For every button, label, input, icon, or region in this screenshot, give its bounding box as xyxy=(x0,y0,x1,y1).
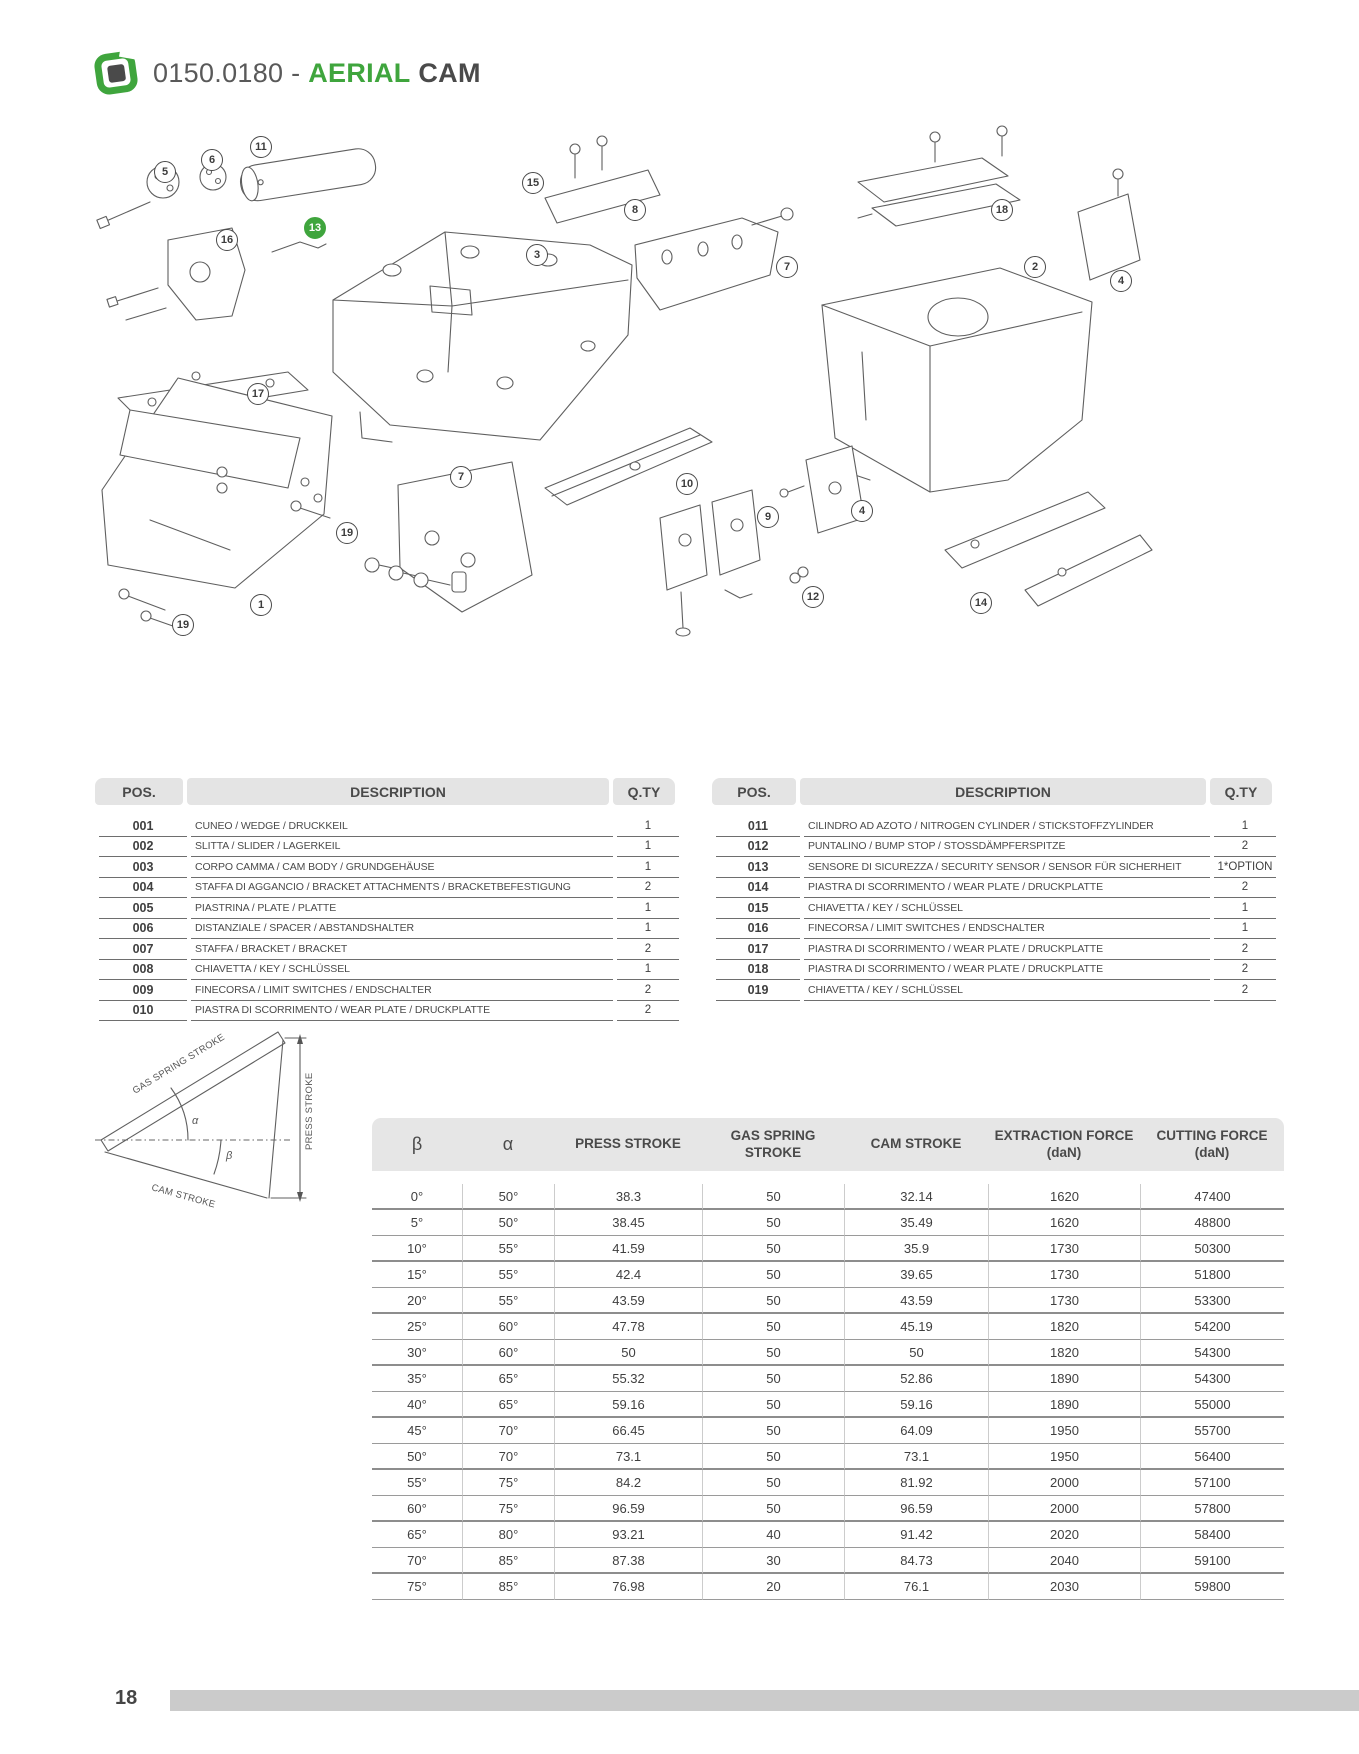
wear-plate-bottom-right xyxy=(945,492,1152,606)
extraction-force-value: 1730 xyxy=(988,1262,1140,1288)
part-qty: 2 xyxy=(617,939,679,960)
diagram-callout-14: 14 xyxy=(970,592,992,614)
force-table-row: 45° 70° 66.45 50 64.09 1950 55700 xyxy=(372,1418,1284,1444)
part-qty: 1 xyxy=(617,960,679,981)
bracket-attachment-right xyxy=(1078,169,1140,280)
gas-spring-stroke-value: 50 xyxy=(702,1210,844,1236)
cutting-force-value: 55700 xyxy=(1140,1418,1284,1444)
alpha-value: 50° xyxy=(462,1184,554,1210)
force-table-header-row: β α PRESS STROKE GAS SPRING STROKE CAM S… xyxy=(372,1118,1284,1184)
cutting-force-value: 59100 xyxy=(1140,1548,1284,1574)
extraction-force-value: 1890 xyxy=(988,1366,1140,1392)
part-pos: 017 xyxy=(716,939,800,960)
gas-spring-stroke-value: 50 xyxy=(702,1236,844,1262)
parts-row: 009 FINECORSA / LIMIT SWITCHES / ENDSCHA… xyxy=(99,980,679,1001)
beta-value: 15° xyxy=(372,1262,462,1288)
cam-stroke-label: CAM STROKE xyxy=(150,1182,216,1210)
cutting-force-value: 54300 xyxy=(1140,1366,1284,1392)
press-stroke-value: 87.38 xyxy=(554,1548,702,1574)
part-pos: 014 xyxy=(716,878,800,899)
diagram-callout-19: 19 xyxy=(336,522,358,544)
parts-table-left: POS. DESCRIPTION Q.TY 001 CUNEO / WEDGE … xyxy=(95,778,675,1021)
beta-arc xyxy=(214,1140,221,1174)
cam-stroke-column-header: CAM STROKE xyxy=(844,1118,988,1184)
diagram-callout-3: 3 xyxy=(526,244,548,266)
part-qty: 2 xyxy=(617,980,679,1001)
cam-stroke-value: 91.42 xyxy=(844,1522,988,1548)
part-description: CHIAVETTA / KEY / SCHLÜSSEL xyxy=(804,980,1210,1001)
part-qty: 2 xyxy=(617,878,679,899)
qty-header: Q.TY xyxy=(1210,778,1272,805)
press-stroke-value: 76.98 xyxy=(554,1574,702,1600)
diagram-callout-10: 10 xyxy=(676,473,698,495)
beta-value: 60° xyxy=(372,1496,462,1522)
press-stroke-value: 93.21 xyxy=(554,1522,702,1548)
cam-stroke-value: 96.59 xyxy=(844,1496,988,1522)
stroke-angle-diagram: α β GAS SPRING STROKE CAM STROKE PRESS S… xyxy=(93,1022,349,1218)
cutting-force-value: 59800 xyxy=(1140,1574,1284,1600)
beta-value: 65° xyxy=(372,1522,462,1548)
extraction-force-value: 1890 xyxy=(988,1392,1140,1418)
alpha-value: 85° xyxy=(462,1548,554,1574)
parts-row: 003 CORPO CAMMA / CAM BODY / GRUNDGEHÄUS… xyxy=(99,857,679,878)
beta-value: 35° xyxy=(372,1366,462,1392)
exploded-view-diagram xyxy=(0,120,1359,680)
press-stroke-value: 96.59 xyxy=(554,1496,702,1522)
cutting-force-value: 54300 xyxy=(1140,1340,1284,1366)
parts-row: 004 STAFFA DI AGGANCIO / BRACKET ATTACHM… xyxy=(99,878,679,899)
part-qty: 1 xyxy=(617,898,679,919)
part-pos: 008 xyxy=(99,960,187,981)
cam-stroke-value: 59.16 xyxy=(844,1392,988,1418)
press-edge xyxy=(269,1040,283,1198)
press-stroke-value: 73.1 xyxy=(554,1444,702,1470)
beta-value: 10° xyxy=(372,1236,462,1262)
cam-stroke-value: 52.86 xyxy=(844,1366,988,1392)
gas-spring-stroke-value: 30 xyxy=(702,1548,844,1574)
product-name-accent: AERIAL xyxy=(308,58,410,88)
alpha-value: 65° xyxy=(462,1366,554,1392)
diagram-callout-1: 1 xyxy=(250,594,272,616)
page-title: 0150.0180 - AERIAL CAM xyxy=(153,58,481,89)
parts-row: 012 PUNTALINO / BUMP STOP / STOSSDÄMPFER… xyxy=(716,837,1276,858)
parts-row: 018 PIASTRA DI SCORRIMENTO / WEAR PLATE … xyxy=(716,960,1276,981)
part-description: CHIAVETTA / KEY / SCHLÜSSEL xyxy=(804,898,1210,919)
extraction-force-value: 1820 xyxy=(988,1340,1140,1366)
extraction-force-value: 1820 xyxy=(988,1314,1140,1340)
alpha-value: 55° xyxy=(462,1236,554,1262)
parts-row: 011 CILINDRO AD AZOTO / NITROGEN CYLINDE… xyxy=(716,816,1276,837)
part-description: CUNEO / WEDGE / DRUCKKEIL xyxy=(191,816,613,837)
part-qty: 1 xyxy=(1214,919,1276,940)
cutting-force-value: 50300 xyxy=(1140,1236,1284,1262)
part-description: STAFFA / BRACKET / BRACKET xyxy=(191,939,613,960)
part-qty: 1 xyxy=(1214,816,1276,837)
gas-spring-stroke-value: 50 xyxy=(702,1184,844,1210)
parts-row: 016 FINECORSA / LIMIT SWITCHES / ENDSCHA… xyxy=(716,919,1276,940)
gas-spring-stroke-value: 50 xyxy=(702,1314,844,1340)
force-table-row: 70° 85° 87.38 30 84.73 2040 59100 xyxy=(372,1548,1284,1574)
extraction-force-value: 1950 xyxy=(988,1444,1140,1470)
cam-stroke-value: 73.1 xyxy=(844,1444,988,1470)
force-table-row: 40° 65° 59.16 50 59.16 1890 55000 xyxy=(372,1392,1284,1418)
page-number: 18 xyxy=(115,1687,137,1710)
beta-value: 50° xyxy=(372,1444,462,1470)
extraction-force-value: 2000 xyxy=(988,1470,1140,1496)
gas-spring-stroke-value: 50 xyxy=(702,1392,844,1418)
diagram-callout-17: 17 xyxy=(247,383,269,405)
parts-table-right: POS. DESCRIPTION Q.TY 011 CILINDRO AD AZ… xyxy=(712,778,1272,1001)
part-pos: 016 xyxy=(716,919,800,940)
part-description: PIASTRINA / PLATE / PLATTE xyxy=(191,898,613,919)
slider-body-part xyxy=(822,268,1092,492)
cutting-force-value: 53300 xyxy=(1140,1288,1284,1314)
part-pos: 002 xyxy=(99,837,187,858)
force-table-row: 30° 60° 50 50 50 1820 54300 xyxy=(372,1340,1284,1366)
part-description: CHIAVETTA / KEY / SCHLÜSSEL xyxy=(191,960,613,981)
cutting-force-value: 57100 xyxy=(1140,1470,1284,1496)
force-table-row: 65° 80° 93.21 40 91.42 2020 58400 xyxy=(372,1522,1284,1548)
alpha-value: 80° xyxy=(462,1522,554,1548)
beta-value: 25° xyxy=(372,1314,462,1340)
page-header: 0150.0180 - AERIAL CAM xyxy=(93,50,481,96)
parts-row: 019 CHIAVETTA / KEY / SCHLÜSSEL 2 xyxy=(716,980,1276,1001)
gas-spring-stroke-column-header: GAS SPRING STROKE xyxy=(702,1118,844,1184)
extraction-force-value: 2040 xyxy=(988,1548,1140,1574)
part-qty: 2 xyxy=(1214,980,1276,1001)
bracket-part-lower xyxy=(365,462,532,612)
diagram-callout-7: 7 xyxy=(450,466,472,488)
parts-row: 005 PIASTRINA / PLATE / PLATTE 1 xyxy=(99,898,679,919)
gas-spring-stroke-value: 50 xyxy=(702,1444,844,1470)
press-stroke-value: 43.59 xyxy=(554,1288,702,1314)
diagram-callout-5: 5 xyxy=(154,161,176,183)
part-qty: 2 xyxy=(1214,960,1276,981)
bracket-part-upper xyxy=(635,208,793,310)
alpha-value: 55° xyxy=(462,1288,554,1314)
part-qty: 2 xyxy=(617,1001,679,1022)
press-stroke-label: PRESS STROKE xyxy=(304,1072,315,1150)
alpha-value: 85° xyxy=(462,1574,554,1600)
part-pos: 019 xyxy=(716,980,800,1001)
part-pos: 006 xyxy=(99,919,187,940)
part-qty: 1 xyxy=(617,837,679,858)
gas-spring-stroke-value: 50 xyxy=(702,1340,844,1366)
parts-table-right-header: POS. DESCRIPTION Q.TY xyxy=(712,778,1272,805)
diagram-callout-6: 6 xyxy=(201,149,223,171)
part-pos: 009 xyxy=(99,980,187,1001)
press-stroke-value: 47.78 xyxy=(554,1314,702,1340)
product-name-rest: CAM xyxy=(418,58,480,88)
beta-value: 40° xyxy=(372,1392,462,1418)
extraction-force-value: 1730 xyxy=(988,1288,1140,1314)
alpha-value: 70° xyxy=(462,1444,554,1470)
part-description: PUNTALINO / BUMP STOP / STOSSDÄMPFERSPIT… xyxy=(804,837,1210,858)
diagram-callout-9: 9 xyxy=(757,506,779,528)
parts-row: 010 PIASTRA DI SCORRIMENTO / WEAR PLATE … xyxy=(99,1001,679,1022)
part-qty: 1 xyxy=(1214,898,1276,919)
extraction-force-value: 2020 xyxy=(988,1522,1140,1548)
sensor-part xyxy=(272,242,326,252)
cam-stroke-value: 64.09 xyxy=(844,1418,988,1444)
extraction-force-value: 1950 xyxy=(988,1418,1140,1444)
part-pos: 013 xyxy=(716,857,800,878)
part-pos: 003 xyxy=(99,857,187,878)
cam-stroke-value: 84.73 xyxy=(844,1548,988,1574)
parts-table-left-header: POS. DESCRIPTION Q.TY xyxy=(95,778,675,805)
part-qty: 1 xyxy=(617,816,679,837)
cam-stroke-value: 45.19 xyxy=(844,1314,988,1340)
part-qty: 2 xyxy=(1214,878,1276,899)
part-qty: 2 xyxy=(1214,939,1276,960)
press-stroke-value: 38.3 xyxy=(554,1184,702,1210)
part-qty: 1 xyxy=(617,919,679,940)
catalog-page: 0150.0180 - AERIAL CAM xyxy=(0,0,1359,1754)
cam-stroke-value: 76.1 xyxy=(844,1574,988,1600)
part-qty: 1 xyxy=(617,857,679,878)
diagram-callout-16: 16 xyxy=(216,229,238,251)
cam-stroke-value: 43.59 xyxy=(844,1288,988,1314)
gas-spring-stroke-value: 50 xyxy=(702,1496,844,1522)
alpha-value: 60° xyxy=(462,1314,554,1340)
beta-value: 75° xyxy=(372,1574,462,1600)
press-stroke-value: 59.16 xyxy=(554,1392,702,1418)
diagram-callout-4: 4 xyxy=(1110,270,1132,292)
beta-value: 20° xyxy=(372,1288,462,1314)
gas-spring-stroke-value: 40 xyxy=(702,1522,844,1548)
force-table-row: 75° 85° 76.98 20 76.1 2030 59800 xyxy=(372,1574,1284,1600)
diagram-callout-12: 12 xyxy=(802,586,824,608)
bump-stop-parts xyxy=(790,567,808,583)
force-table-row: 35° 65° 55.32 50 52.86 1890 54300 xyxy=(372,1366,1284,1392)
press-stroke-value: 55.32 xyxy=(554,1366,702,1392)
alpha-label: α xyxy=(192,1115,199,1127)
part-pos: 011 xyxy=(716,816,800,837)
force-table-row: 55° 75° 84.2 50 81.92 2000 57100 xyxy=(372,1470,1284,1496)
bracket-attachment-middle xyxy=(780,446,864,533)
force-data-table: β α PRESS STROKE GAS SPRING STROKE CAM S… xyxy=(372,1118,1284,1600)
part-pos: 001 xyxy=(99,816,187,837)
part-qty: 2 xyxy=(1214,837,1276,858)
product-code: 0150.0180 - xyxy=(153,58,300,88)
extraction-force-value: 2030 xyxy=(988,1574,1140,1600)
qty-header: Q.TY xyxy=(613,778,675,805)
cam-stroke-value: 81.92 xyxy=(844,1470,988,1496)
parts-row: 006 DISTANZIALE / SPACER / ABSTANDSHALTE… xyxy=(99,919,679,940)
part-description: STAFFA DI AGGANCIO / BRACKET ATTACHMENTS… xyxy=(191,878,613,899)
press-stroke-value: 84.2 xyxy=(554,1470,702,1496)
alpha-value: 65° xyxy=(462,1392,554,1418)
part-description: SENSORE DI SICUREZZA / SECURITY SENSOR /… xyxy=(804,857,1210,878)
beta-value: 0° xyxy=(372,1184,462,1210)
press-stroke-value: 50 xyxy=(554,1340,702,1366)
alpha-column-header: α xyxy=(462,1118,554,1184)
part-description: SLITTA / SLIDER / LAGERKEIL xyxy=(191,837,613,858)
beta-value: 55° xyxy=(372,1470,462,1496)
part-pos: 007 xyxy=(99,939,187,960)
beta-value: 70° xyxy=(372,1548,462,1574)
part-pos: 015 xyxy=(716,898,800,919)
alpha-value: 55° xyxy=(462,1262,554,1288)
force-table-row: 25° 60° 47.78 50 45.19 1820 54200 xyxy=(372,1314,1284,1340)
cam-body-part xyxy=(333,232,632,442)
press-stroke-column-header: PRESS STROKE xyxy=(554,1118,702,1184)
press-stroke-value: 41.59 xyxy=(554,1236,702,1262)
part-description: CORPO CAMMA / CAM BODY / GRUNDGEHÄUSE xyxy=(191,857,613,878)
cutting-force-value: 58400 xyxy=(1140,1522,1284,1548)
alpha-value: 50° xyxy=(462,1210,554,1236)
force-table-row: 10° 55° 41.59 50 35.9 1730 50300 xyxy=(372,1236,1284,1262)
diagram-callout-8: 8 xyxy=(624,199,646,221)
extraction-force-value: 1730 xyxy=(988,1236,1140,1262)
gas-spring-stroke-value: 50 xyxy=(702,1470,844,1496)
gas-spring-stroke-value: 50 xyxy=(702,1288,844,1314)
force-table-row: 50° 70° 73.1 50 73.1 1950 56400 xyxy=(372,1444,1284,1470)
part-description: FINECORSA / LIMIT SWITCHES / ENDSCHALTER xyxy=(191,980,613,1001)
brand-logo-icon xyxy=(93,50,139,96)
beta-value: 45° xyxy=(372,1418,462,1444)
cam-stroke-value: 35.49 xyxy=(844,1210,988,1236)
extraction-force-column-header: EXTRACTION FORCE (daN) xyxy=(988,1118,1140,1184)
pos-header: POS. xyxy=(95,778,183,805)
parts-row: 015 CHIAVETTA / KEY / SCHLÜSSEL 1 xyxy=(716,898,1276,919)
cutting-force-column-header: CUTTING FORCE (daN) xyxy=(1140,1118,1284,1184)
diagram-callout-7: 7 xyxy=(776,256,798,278)
gas-spring-stroke-value: 50 xyxy=(702,1366,844,1392)
part-pos: 012 xyxy=(716,837,800,858)
pos-header: POS. xyxy=(712,778,796,805)
alpha-value: 70° xyxy=(462,1418,554,1444)
diagram-callout-15: 15 xyxy=(522,172,544,194)
cam-stroke-value: 35.9 xyxy=(844,1236,988,1262)
part-description: PIASTRA DI SCORRIMENTO / WEAR PLATE / DR… xyxy=(804,878,1210,899)
force-table-row: 0° 50° 38.3 50 32.14 1620 47400 xyxy=(372,1184,1284,1210)
force-table-row: 20° 55° 43.59 50 43.59 1730 53300 xyxy=(372,1288,1284,1314)
parts-row: 008 CHIAVETTA / KEY / SCHLÜSSEL 1 xyxy=(99,960,679,981)
footer-bar xyxy=(170,1690,1359,1711)
limit-switch-parts xyxy=(660,490,760,636)
part-description: CILINDRO AD AZOTO / NITROGEN CYLINDER / … xyxy=(804,816,1210,837)
part-pos: 018 xyxy=(716,960,800,981)
description-header: DESCRIPTION xyxy=(800,778,1206,805)
cam-stroke-value: 50 xyxy=(844,1340,988,1366)
extraction-force-value: 2000 xyxy=(988,1496,1140,1522)
parts-row: 017 PIASTRA DI SCORRIMENTO / WEAR PLATE … xyxy=(716,939,1276,960)
diagram-callout-11: 11 xyxy=(250,136,272,158)
alpha-value: 75° xyxy=(462,1470,554,1496)
diagram-callout-19: 19 xyxy=(172,614,194,636)
cutting-force-value: 54200 xyxy=(1140,1314,1284,1340)
gas-spring-stroke-value: 50 xyxy=(702,1418,844,1444)
cutting-force-value: 56400 xyxy=(1140,1444,1284,1470)
beta-label: β xyxy=(225,1150,233,1162)
diagram-callout-13: 13 xyxy=(304,217,326,239)
part-description: FINECORSA / LIMIT SWITCHES / ENDSCHALTER xyxy=(804,919,1210,940)
alpha-value: 60° xyxy=(462,1340,554,1366)
parts-row: 001 CUNEO / WEDGE / DRUCKKEIL 1 xyxy=(99,816,679,837)
beta-value: 5° xyxy=(372,1210,462,1236)
diagram-callout-18: 18 xyxy=(991,199,1013,221)
part-pos: 010 xyxy=(99,1001,187,1022)
part-pos: 004 xyxy=(99,878,187,899)
diagram-callout-2: 2 xyxy=(1024,256,1046,278)
force-table-row: 60° 75° 96.59 50 96.59 2000 57800 xyxy=(372,1496,1284,1522)
parts-row: 014 PIASTRA DI SCORRIMENTO / WEAR PLATE … xyxy=(716,878,1276,899)
cutting-force-value: 57800 xyxy=(1140,1496,1284,1522)
description-header: DESCRIPTION xyxy=(187,778,609,805)
beta-value: 30° xyxy=(372,1340,462,1366)
cam-stroke-value: 39.65 xyxy=(844,1262,988,1288)
parts-row: 013 SENSORE DI SICUREZZA / SECURITY SENS… xyxy=(716,857,1276,878)
gas-spring-stroke-value: 50 xyxy=(702,1262,844,1288)
beta-column-header: β xyxy=(372,1118,462,1184)
press-stroke-value: 66.45 xyxy=(554,1418,702,1444)
force-table-row: 15° 55° 42.4 50 39.65 1730 51800 xyxy=(372,1262,1284,1288)
part-qty: 1*OPTION xyxy=(1214,857,1276,878)
parts-row: 002 SLITTA / SLIDER / LAGERKEIL 1 xyxy=(99,837,679,858)
alpha-value: 75° xyxy=(462,1496,554,1522)
extraction-force-value: 1620 xyxy=(988,1184,1140,1210)
diagram-callout-4: 4 xyxy=(851,500,873,522)
press-stroke-value: 42.4 xyxy=(554,1262,702,1288)
extraction-force-value: 1620 xyxy=(988,1210,1140,1236)
cutting-force-value: 48800 xyxy=(1140,1210,1284,1236)
cutting-force-value: 55000 xyxy=(1140,1392,1284,1418)
cam-stroke-value: 32.14 xyxy=(844,1184,988,1210)
cutting-force-value: 47400 xyxy=(1140,1184,1284,1210)
parts-row: 007 STAFFA / BRACKET / BRACKET 2 xyxy=(99,939,679,960)
part-description: DISTANZIALE / SPACER / ABSTANDSHALTER xyxy=(191,919,613,940)
press-stroke-value: 38.45 xyxy=(554,1210,702,1236)
part-description: PIASTRA DI SCORRIMENTO / WEAR PLATE / DR… xyxy=(804,960,1210,981)
part-description: PIASTRA DI SCORRIMENTO / WEAR PLATE / DR… xyxy=(191,1001,613,1022)
part-pos: 005 xyxy=(99,898,187,919)
gas-spring-stroke-value: 20 xyxy=(702,1574,844,1600)
force-table-row: 5° 50° 38.45 50 35.49 1620 48800 xyxy=(372,1210,1284,1236)
cutting-force-value: 51800 xyxy=(1140,1262,1284,1288)
part-description: PIASTRA DI SCORRIMENTO / WEAR PLATE / DR… xyxy=(804,939,1210,960)
